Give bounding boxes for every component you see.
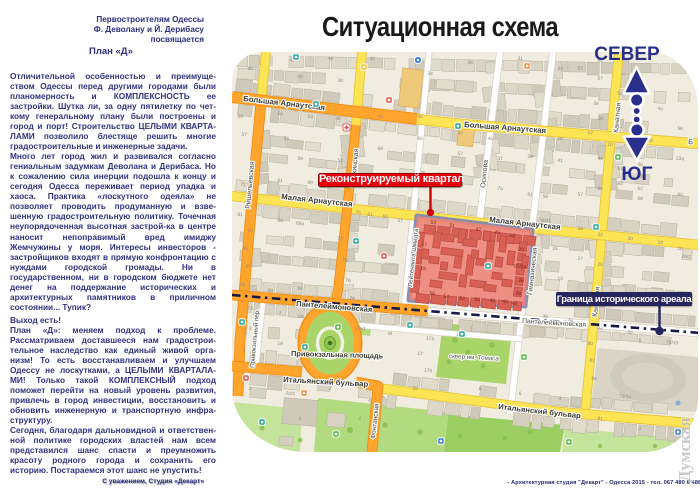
svg-text:2а/3: 2а/3 xyxy=(285,391,295,398)
svg-text:58: 58 xyxy=(597,116,603,122)
svg-text:12: 12 xyxy=(587,130,593,136)
svg-text:54: 54 xyxy=(443,294,449,301)
svg-text:25: 25 xyxy=(412,386,418,392)
svg-text:10: 10 xyxy=(607,142,613,148)
svg-text:84: 84 xyxy=(591,376,597,382)
svg-text:53: 53 xyxy=(283,136,289,142)
svg-text:28: 28 xyxy=(515,291,521,298)
svg-text:76: 76 xyxy=(345,278,351,284)
svg-text:69: 69 xyxy=(239,282,245,288)
svg-text:56: 56 xyxy=(429,291,435,298)
svg-text:25: 25 xyxy=(597,262,603,268)
svg-text:46: 46 xyxy=(335,116,341,122)
svg-text:57: 57 xyxy=(397,218,403,224)
svg-text:55: 55 xyxy=(277,111,283,117)
svg-text:65: 65 xyxy=(242,246,248,252)
svg-text:63: 63 xyxy=(247,228,253,234)
svg-text:Б: Б xyxy=(688,137,694,146)
svg-text:69: 69 xyxy=(307,180,313,186)
svg-text:19: 19 xyxy=(277,341,283,347)
svg-text:20: 20 xyxy=(518,247,524,254)
svg-text:34: 34 xyxy=(597,326,603,332)
svg-text:73: 73 xyxy=(247,306,253,312)
svg-text:46: 46 xyxy=(502,299,508,306)
svg-text:53: 53 xyxy=(307,114,313,120)
svg-text:44: 44 xyxy=(511,301,517,308)
svg-text:48: 48 xyxy=(489,298,495,305)
svg-text:60: 60 xyxy=(677,192,683,198)
svg-text:19: 19 xyxy=(297,314,303,320)
svg-text:72: 72 xyxy=(337,236,343,242)
svg-text:78: 78 xyxy=(349,296,355,302)
svg-text:26: 26 xyxy=(518,278,524,285)
svg-text:34: 34 xyxy=(427,71,433,77)
svg-text:45: 45 xyxy=(487,136,493,142)
svg-text:27: 27 xyxy=(577,256,583,262)
svg-text:33: 33 xyxy=(557,66,563,72)
svg-text:79/15: 79/15 xyxy=(666,339,679,346)
svg-text:57: 57 xyxy=(597,76,603,82)
svg-text:32: 32 xyxy=(627,330,633,336)
svg-text:74: 74 xyxy=(342,258,348,264)
svg-text:82: 82 xyxy=(589,358,595,364)
svg-text:81: 81 xyxy=(597,416,603,422)
svg-text:66: 66 xyxy=(297,286,303,292)
svg-text:38: 38 xyxy=(337,78,343,84)
svg-text:41: 41 xyxy=(557,158,563,164)
svg-text:68: 68 xyxy=(267,288,273,294)
svg-text:59: 59 xyxy=(542,194,548,200)
svg-text:40: 40 xyxy=(297,74,303,80)
svg-text:62: 62 xyxy=(637,186,643,192)
svg-text:31: 31 xyxy=(517,56,523,62)
svg-text:45: 45 xyxy=(417,114,423,120)
svg-text:23а: 23а xyxy=(676,156,685,163)
svg-text:М: М xyxy=(388,331,393,337)
svg-text:67: 67 xyxy=(245,264,251,270)
svg-text:69: 69 xyxy=(277,218,283,224)
svg-text:57: 57 xyxy=(577,66,583,72)
svg-text:49: 49 xyxy=(327,56,333,62)
svg-text:17: 17 xyxy=(417,351,423,357)
svg-text:61: 61 xyxy=(527,192,533,198)
svg-text:19: 19 xyxy=(420,266,426,273)
svg-text:39: 39 xyxy=(527,154,533,160)
svg-text:17: 17 xyxy=(421,242,427,249)
svg-text:47: 47 xyxy=(475,227,481,234)
svg-text:45: 45 xyxy=(494,230,500,237)
svg-text:57: 57 xyxy=(577,192,583,198)
svg-text:43: 43 xyxy=(377,114,383,120)
svg-text:75: 75 xyxy=(497,186,503,192)
svg-text:13: 13 xyxy=(557,276,563,282)
svg-text:61: 61 xyxy=(237,212,243,218)
svg-text:176/1: 176/1 xyxy=(354,325,367,332)
svg-text:4а: 4а xyxy=(657,106,663,112)
svg-text:59: 59 xyxy=(297,156,303,162)
svg-text:59: 59 xyxy=(382,214,388,220)
svg-text:66: 66 xyxy=(597,186,603,192)
svg-text:51: 51 xyxy=(449,223,455,230)
svg-text:Думская: Думская xyxy=(675,418,694,482)
svg-text:69а: 69а xyxy=(296,221,305,228)
svg-text:69: 69 xyxy=(377,146,383,152)
svg-text:57: 57 xyxy=(457,151,463,157)
svg-text:26/2: 26/2 xyxy=(681,254,691,261)
svg-text:43: 43 xyxy=(509,233,515,240)
svg-text:52: 52 xyxy=(337,158,343,164)
svg-text:17б: 17б xyxy=(424,368,433,375)
svg-text:79/1а: 79/1а xyxy=(619,393,632,400)
svg-text:68: 68 xyxy=(637,196,643,202)
svg-text:80: 80 xyxy=(587,341,593,347)
svg-text:30: 30 xyxy=(627,236,633,242)
svg-text:28: 28 xyxy=(657,240,663,246)
svg-text:52: 52 xyxy=(459,296,465,303)
svg-text:71: 71 xyxy=(240,182,246,188)
svg-text:36: 36 xyxy=(467,60,473,66)
svg-text:47: 47 xyxy=(457,131,463,137)
svg-text:42: 42 xyxy=(369,56,375,62)
svg-text:50: 50 xyxy=(474,297,480,304)
svg-text:65: 65 xyxy=(417,136,423,142)
svg-text:57: 57 xyxy=(241,132,247,138)
svg-text:59: 59 xyxy=(237,114,243,120)
svg-text:60: 60 xyxy=(247,66,253,72)
svg-text:54: 54 xyxy=(617,91,623,97)
svg-text:53: 53 xyxy=(430,220,436,227)
svg-text:16: 16 xyxy=(557,136,563,142)
svg-text:17а: 17а xyxy=(426,336,435,343)
svg-text:56: 56 xyxy=(677,126,683,132)
svg-text:34: 34 xyxy=(577,226,583,232)
svg-text:32: 32 xyxy=(597,232,603,238)
svg-text:37: 37 xyxy=(497,156,503,162)
svg-text:16: 16 xyxy=(677,246,683,252)
svg-text:75: 75 xyxy=(355,210,361,216)
svg-text:15: 15 xyxy=(552,246,558,252)
svg-text:56: 56 xyxy=(593,101,599,107)
svg-text:61: 61 xyxy=(367,212,373,218)
svg-text:44: 44 xyxy=(597,156,603,162)
svg-text:61: 61 xyxy=(277,178,283,184)
